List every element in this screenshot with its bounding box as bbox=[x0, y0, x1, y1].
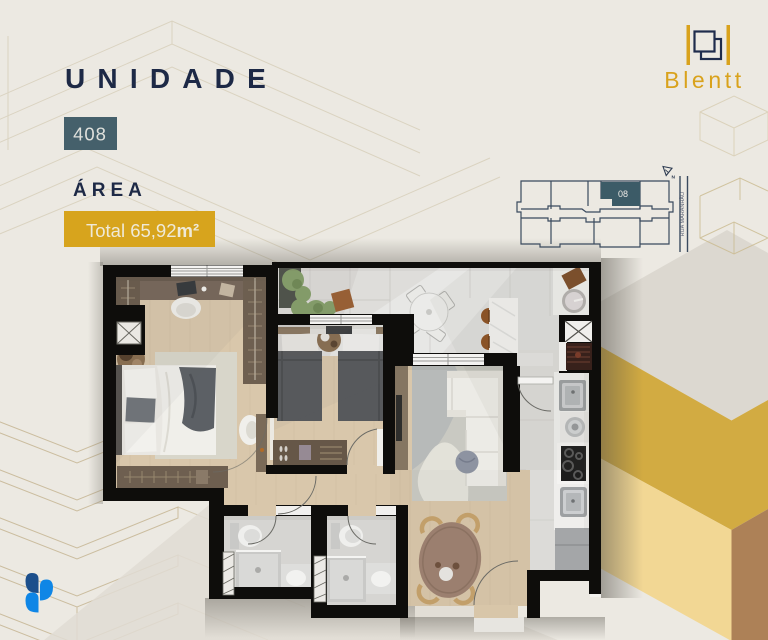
svg-text:ÁREA: ÁREA bbox=[73, 179, 147, 201]
svg-text:UNIDADE: UNIDADE bbox=[65, 63, 278, 94]
svg-text:Total 65,92m²: Total 65,92m² bbox=[86, 220, 199, 241]
svg-text:08: 08 bbox=[618, 189, 628, 199]
svg-text:408: 408 bbox=[73, 124, 107, 145]
svg-text:RUA MARANHÃO: RUA MARANHÃO bbox=[679, 191, 686, 236]
svg-text:Blentt: Blentt bbox=[664, 67, 744, 93]
svg-text:N: N bbox=[672, 175, 676, 181]
